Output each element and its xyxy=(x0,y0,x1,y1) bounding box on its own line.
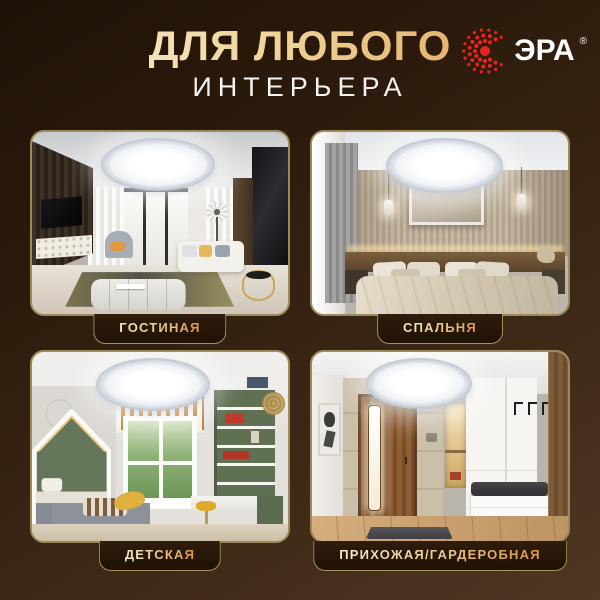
wood-panel xyxy=(548,352,568,541)
book-on-ottoman xyxy=(116,284,144,289)
tv-console xyxy=(36,235,92,259)
brand-name: ЭРА xyxy=(514,34,574,68)
card-living-room: ГОСТИНАЯ xyxy=(30,130,290,316)
armchair xyxy=(105,231,133,258)
room-badge-bedroom: СПАЛЬНЯ xyxy=(377,314,503,344)
abstract-art xyxy=(318,403,341,456)
promo-page: ДЛЯ ЛЮБОГО ИНТЕРЬЕРА ЭРА ® xyxy=(0,0,600,600)
dark-corner-mirror xyxy=(252,147,288,274)
bed xyxy=(356,276,558,314)
bedroom-photo xyxy=(310,130,570,316)
floor xyxy=(32,524,288,541)
card-hallway: ПРИХОЖАЯ/ГАРДЕРОБНАЯ xyxy=(310,350,570,543)
kids-room-photo xyxy=(30,350,290,543)
ceiling-light-icon xyxy=(366,358,472,409)
toy-car xyxy=(225,414,244,423)
sofa xyxy=(178,241,245,272)
coat-hook xyxy=(528,402,537,415)
bench-base xyxy=(471,496,548,519)
hallway-photo xyxy=(310,350,570,543)
dried-flowers xyxy=(537,247,555,263)
era-sunburst-icon xyxy=(460,26,510,76)
books xyxy=(251,431,259,443)
brand-logo: ЭРА ® xyxy=(460,26,586,76)
page-subtitle: ИНТЕРЬЕРА xyxy=(0,72,600,103)
storage-box xyxy=(219,377,245,388)
bench-cushion xyxy=(471,482,548,495)
room-cards-grid: ГОСТИНАЯ xyxy=(30,130,570,543)
pendant-light-right xyxy=(517,167,527,213)
card-kids-room: ДЕТСКАЯ xyxy=(30,350,290,543)
lit-niche xyxy=(445,403,465,488)
room-badge-kids: ДЕТСКАЯ xyxy=(99,541,221,571)
toy-car xyxy=(223,451,249,459)
living-room-photo xyxy=(30,130,290,316)
card-bedroom: СПАЛЬНЯ xyxy=(310,130,570,316)
door-handle xyxy=(405,457,408,463)
wooden-door xyxy=(358,394,417,526)
door-glass-strip xyxy=(368,405,381,511)
badge-label: ПРИХОЖАЯ/ГАРДЕРОБНАЯ xyxy=(339,547,541,562)
room-badge-hallway: ПРИХОЖАЯ/ГАРДЕРОБНАЯ xyxy=(313,541,567,571)
room-badge-living: ГОСТИНАЯ xyxy=(93,314,226,344)
storage-box xyxy=(247,377,267,388)
badge-label: СПАЛЬНЯ xyxy=(403,320,477,335)
registered-mark: ® xyxy=(580,36,587,47)
decor-stand xyxy=(216,217,218,242)
ceiling-light-icon xyxy=(96,358,210,411)
dark-rug xyxy=(366,527,453,539)
badge-label: ГОСТИНАЯ xyxy=(119,320,200,335)
ceiling-light-icon xyxy=(386,138,503,193)
gold-side-table xyxy=(242,270,275,301)
light-switch xyxy=(426,433,438,442)
rattan-decor xyxy=(262,392,285,415)
coat-hook xyxy=(514,402,523,415)
decor-item xyxy=(450,472,461,481)
badge-label: ДЕТСКАЯ xyxy=(125,547,195,562)
tv-screen xyxy=(41,196,82,229)
